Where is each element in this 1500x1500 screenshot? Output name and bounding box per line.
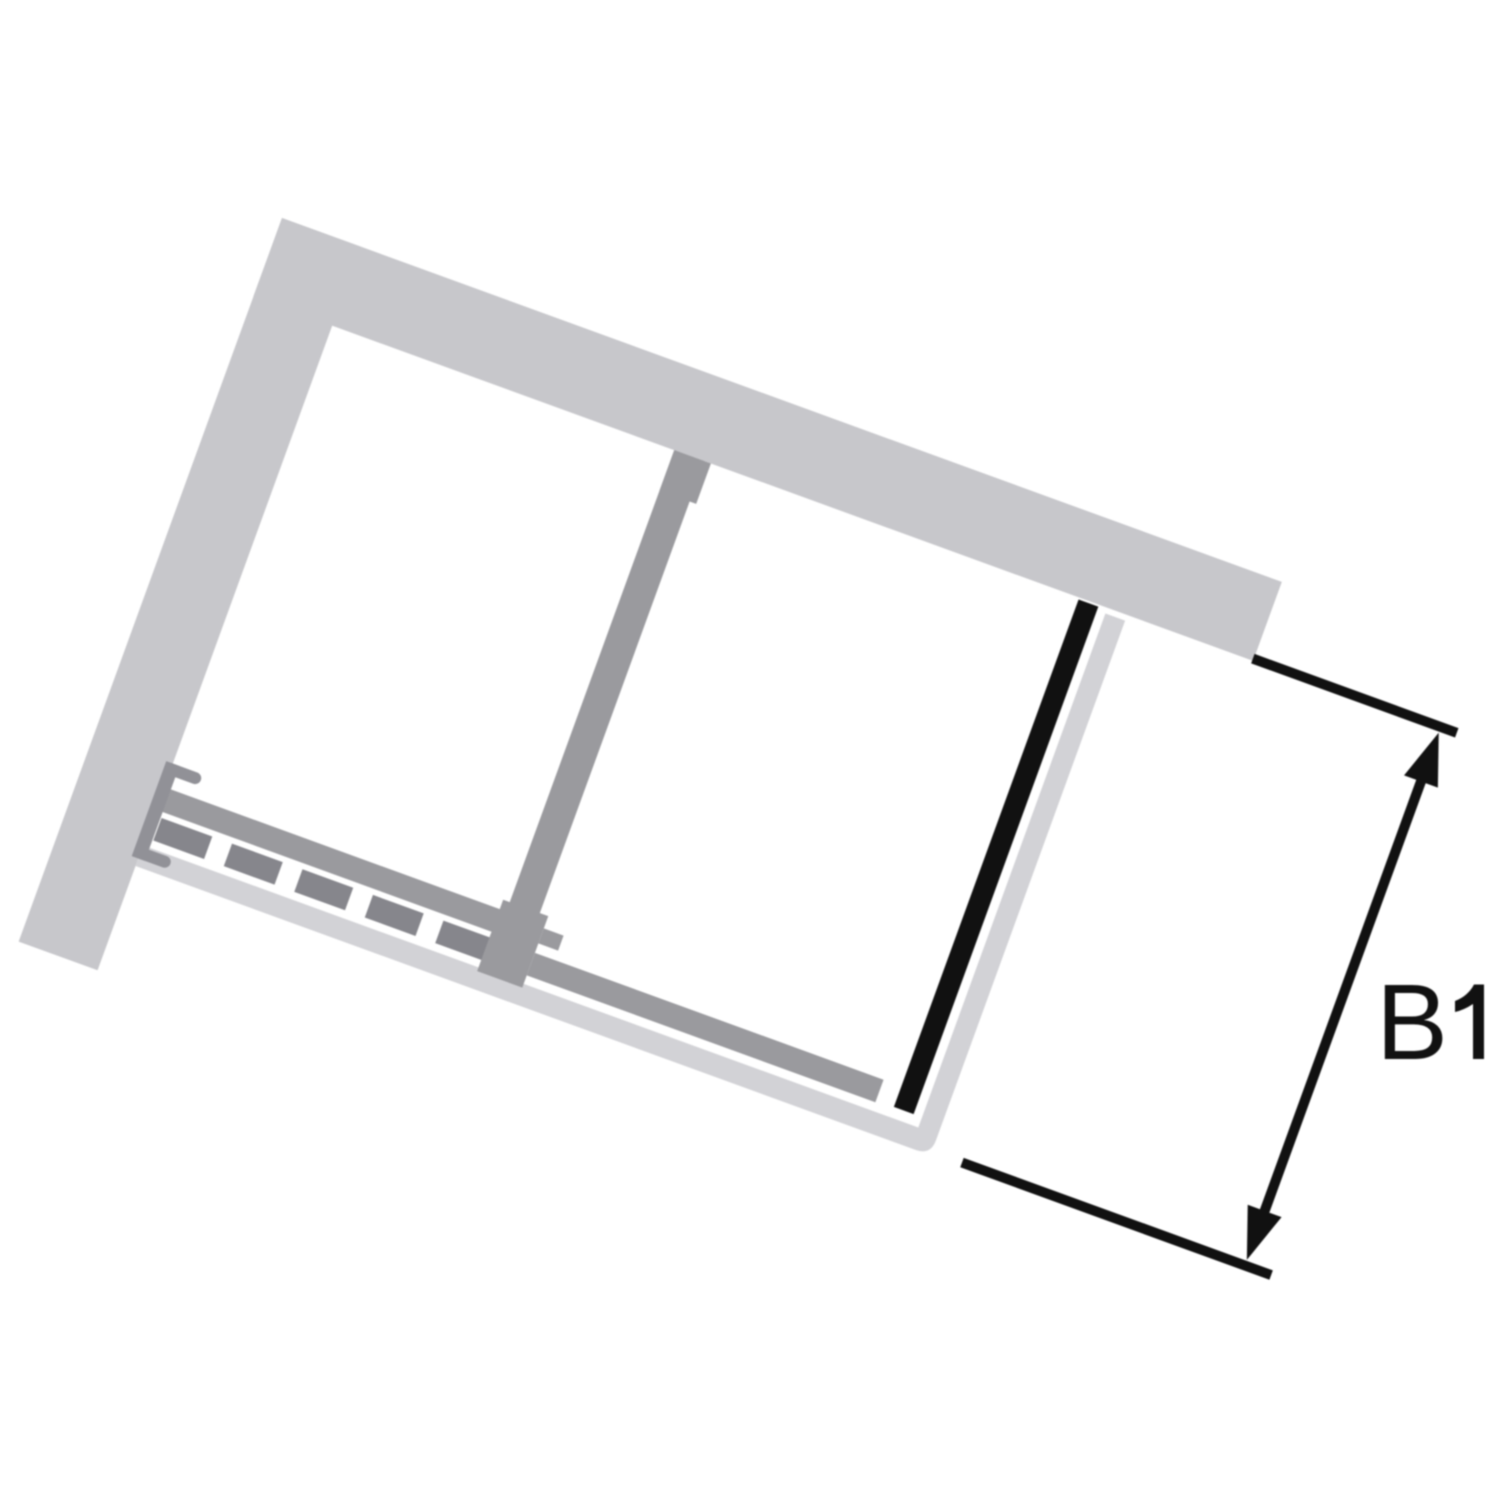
svg-text:B: B [1376,961,1448,1082]
